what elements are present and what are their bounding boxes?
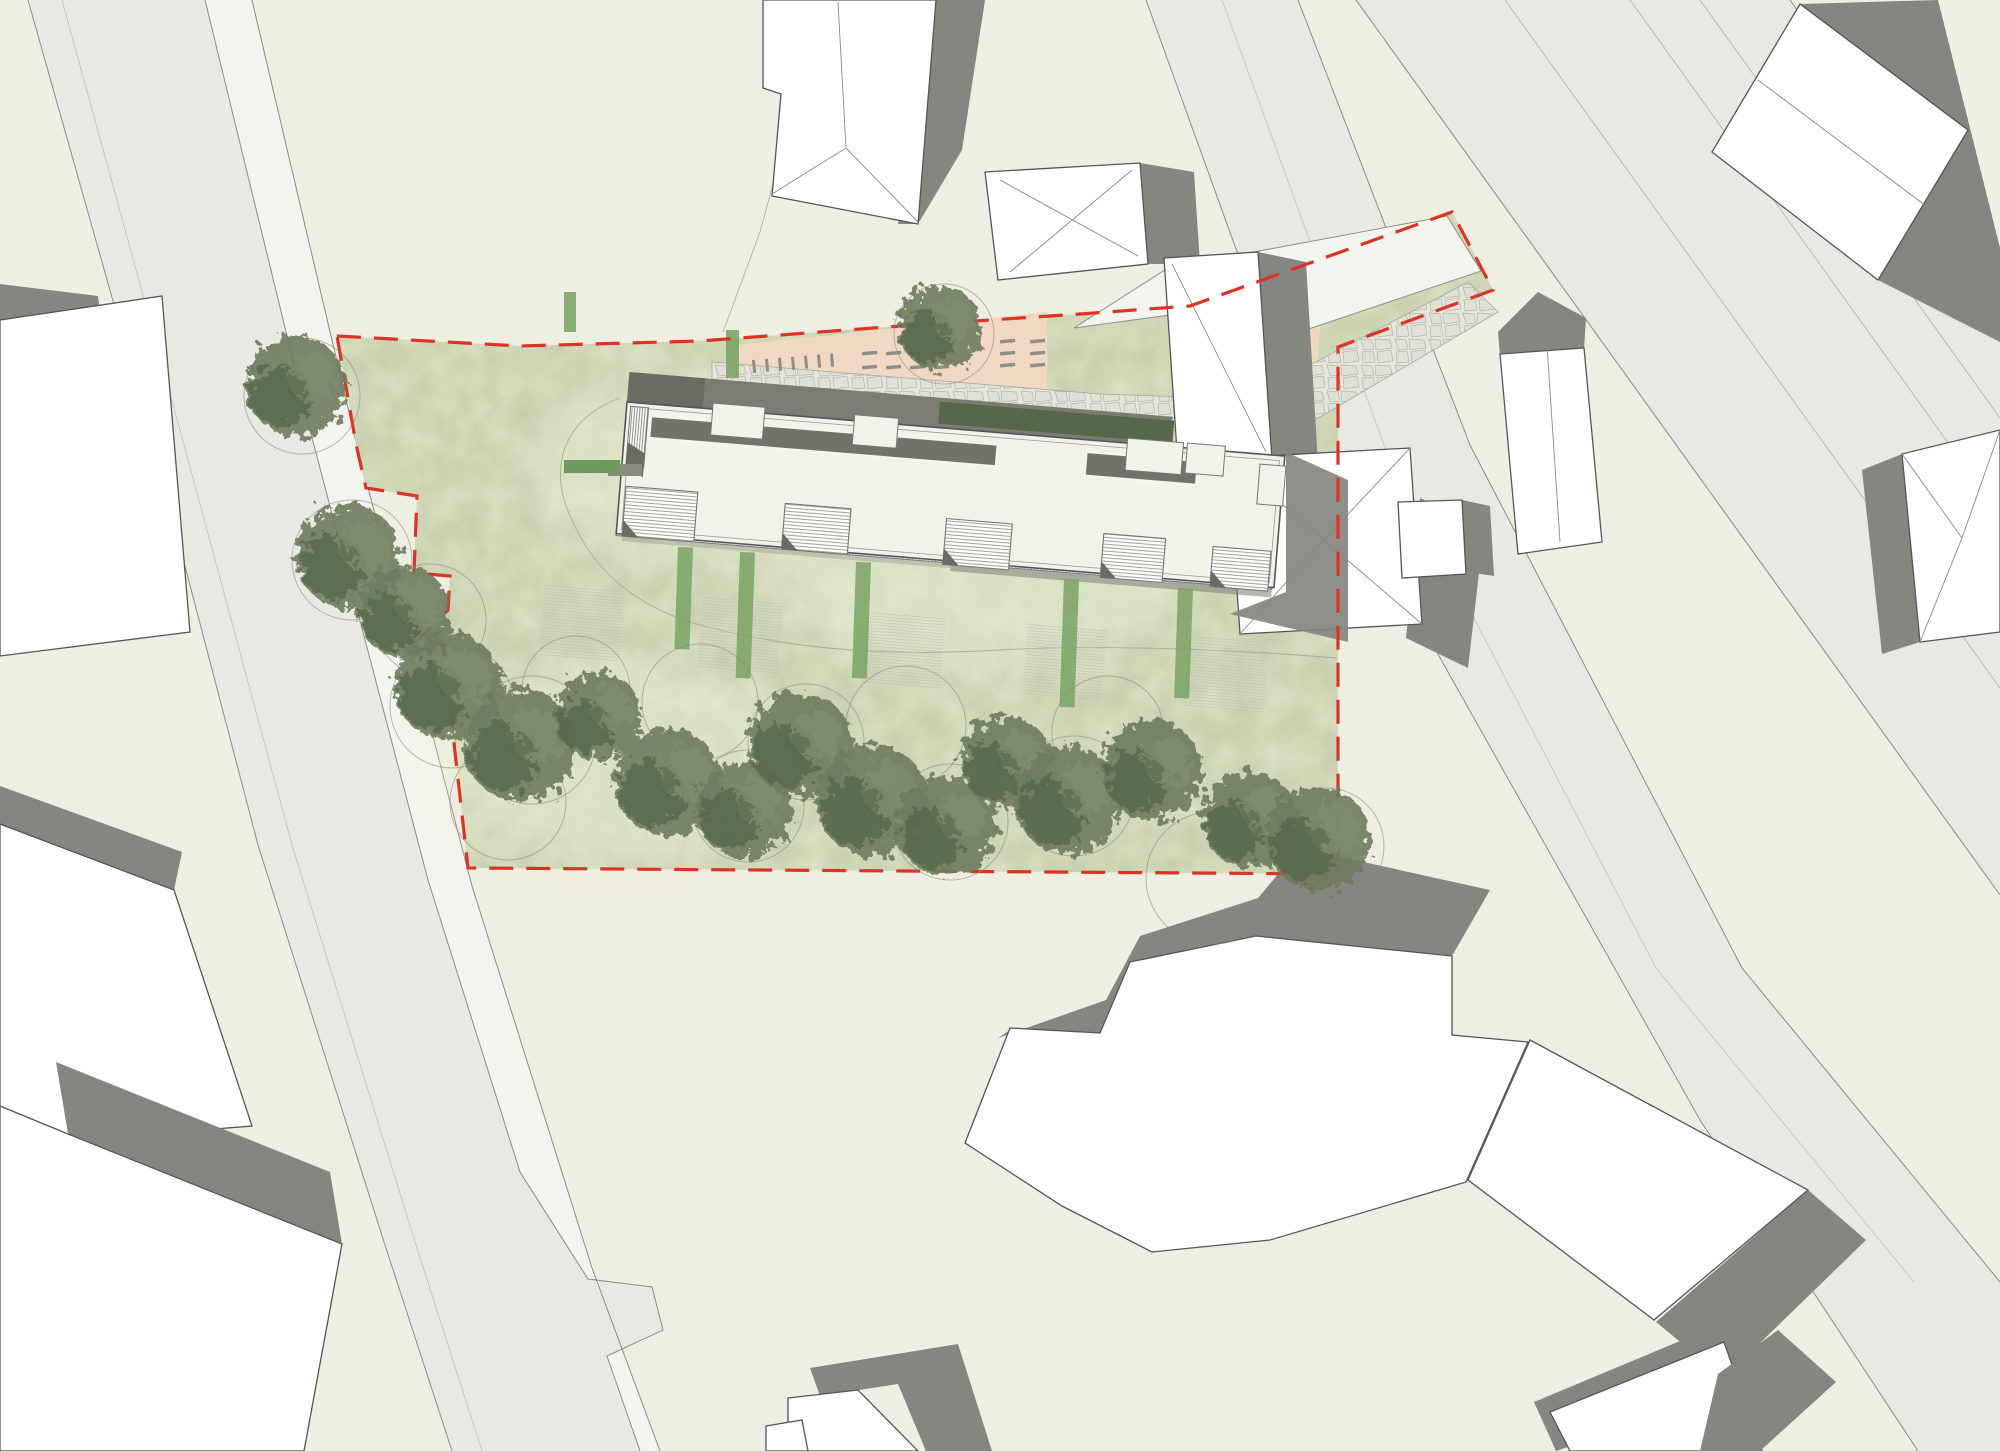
building-road-gable <box>1500 348 1602 554</box>
building-top-center-right <box>985 163 1148 280</box>
tree-core <box>1057 789 1079 811</box>
tree-core <box>286 376 306 396</box>
site-plan-canvas <box>0 0 2000 1451</box>
tree-core <box>509 734 531 756</box>
building-top-center-right-shadow <box>1140 163 1200 264</box>
tree-core <box>395 603 413 621</box>
patio-hatch <box>1184 636 1270 714</box>
building-right-house-annex <box>1398 500 1466 578</box>
tree-core <box>932 320 949 337</box>
tree-core <box>790 734 811 755</box>
patio-hatch <box>860 610 946 688</box>
tree <box>246 336 346 436</box>
tree-core <box>861 789 883 811</box>
site-plan-drawing <box>0 0 2000 1451</box>
roof-notch <box>852 415 898 449</box>
tree-core <box>657 771 679 793</box>
roof-notch <box>711 403 765 439</box>
tree-core <box>936 816 956 836</box>
tree-core <box>437 675 459 697</box>
tree-core <box>1142 760 1162 780</box>
tree-core <box>997 753 1015 771</box>
hedge-patch <box>564 460 620 473</box>
tree-core <box>338 546 359 567</box>
roof-notch <box>1125 438 1183 474</box>
building-top-center <box>763 0 936 224</box>
tree-core <box>1308 828 1329 849</box>
hedge-strip <box>726 330 739 378</box>
hedge-strip <box>564 292 576 332</box>
roof-notch <box>1185 443 1225 476</box>
roof-notch <box>1257 464 1286 506</box>
building-right-upper <box>1164 252 1272 466</box>
building-bottom-center-annex <box>766 1420 808 1451</box>
building-right-edge <box>1902 430 2000 642</box>
tree <box>1266 786 1370 890</box>
tree-core <box>1240 810 1259 829</box>
tree <box>898 286 982 370</box>
building-left-upper <box>0 296 190 656</box>
tree-core <box>589 707 607 725</box>
tree-core <box>734 800 753 819</box>
tree <box>1102 720 1202 820</box>
